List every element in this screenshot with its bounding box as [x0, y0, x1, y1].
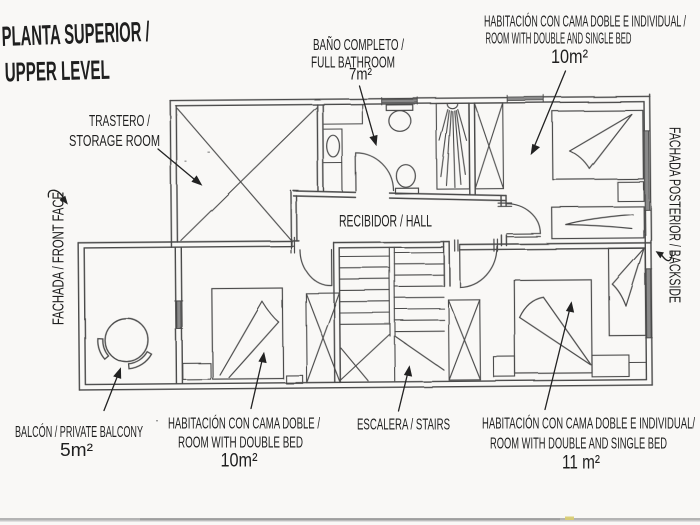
svg-text:11 m²: 11 m²	[562, 453, 600, 474]
svg-text:ROOM WITH DOUBLE BED: ROOM WITH DOUBLE BED	[178, 435, 303, 452]
svg-text:HABITACIÓN CON CAMA DOBLE /: HABITACIÓN CON CAMA DOBLE /	[168, 416, 320, 433]
svg-text:ROOM WITH DOUBLE AND SINGLE BE: ROOM WITH DOUBLE AND SINGLE BED	[486, 31, 632, 48]
svg-text:ROOM WITH DOUBLE AND SINGLE BE: ROOM WITH DOUBLE AND SINGLE BED	[490, 436, 667, 453]
svg-text:PLANTA SUPERIOR /: PLANTA SUPERIOR /	[1, 16, 150, 52]
svg-text:FACHADA / FRONT FACE: FACHADA / FRONT FACE	[51, 192, 68, 325]
svg-text:TRASTERO /: TRASTERO /	[89, 113, 150, 130]
svg-text:5m²: 5m²	[60, 440, 93, 460]
svg-text:RECIBIDOR / HALL: RECIBIDOR / HALL	[339, 213, 432, 231]
svg-text:UPPER LEVEL: UPPER LEVEL	[4, 55, 110, 88]
svg-text:ESCALERA / STAIRS: ESCALERA / STAIRS	[357, 417, 450, 434]
svg-text:HABITACIÓN CON CAMA DOBLE E IN: HABITACIÓN CON CAMA DOBLE E INDIVIDUAL/	[482, 416, 695, 433]
svg-text:STORAGE ROOM: STORAGE ROOM	[69, 133, 160, 150]
svg-text:7m²: 7m²	[349, 65, 372, 84]
svg-text:HABITACIÓN CON CAMA DOBLE E IN: HABITACIÓN CON CAMA DOBLE E INDIVIDUAL /	[484, 14, 686, 31]
svg-text:10m²: 10m²	[551, 47, 588, 68]
svg-text:BAÑO COMPLETO /: BAÑO COMPLETO /	[313, 34, 404, 54]
svg-text:10m²: 10m²	[221, 451, 258, 472]
svg-text:BALCÓN / PRIVATE BALCONY: BALCÓN / PRIVATE BALCONY	[15, 424, 143, 441]
svg-text:FACHADA POSTERIOR / BACKSIDE: FACHADA POSTERIOR / BACKSIDE	[666, 127, 683, 303]
